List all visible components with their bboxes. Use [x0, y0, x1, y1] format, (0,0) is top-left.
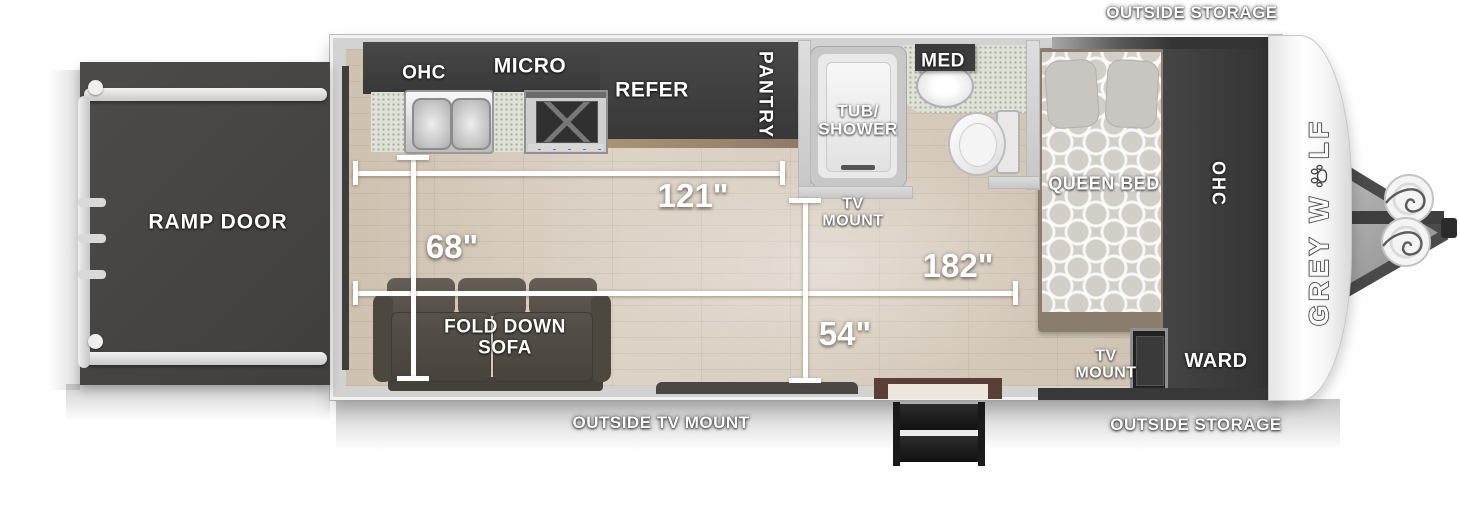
pantry-label: PANTRY: [754, 51, 775, 139]
ramp-ground-shadow: [66, 384, 330, 428]
tub-faucet: [841, 165, 875, 170]
kitchen-counter-left: [371, 92, 404, 152]
entry-steps: [893, 402, 985, 466]
refer-label: REFER: [615, 80, 689, 103]
step-tread: [900, 436, 978, 462]
dim-68-label: 68": [426, 229, 478, 265]
kitchen-stove: [524, 90, 608, 154]
bath-wall-left: [798, 40, 811, 200]
stove-control-strip: [528, 144, 604, 151]
bedroom-tv-mount-label: TV MOUNT: [1075, 348, 1136, 383]
sofa-back-cushion: [387, 278, 455, 316]
dim-121-label: 121": [658, 178, 729, 214]
fold-down-sofa-label: FOLD DOWN SOFA: [444, 317, 566, 358]
brand-logo: GREY W LF: [1302, 91, 1336, 353]
ramp-door-rung: [78, 198, 106, 207]
ramp-door-rung: [78, 270, 106, 279]
toilet-bowl: [948, 112, 1006, 176]
outside-tv-mount-label: OUTSIDE TV MOUNT: [572, 414, 749, 432]
dim-182-label: 182": [923, 248, 994, 284]
kitchen-sink: [404, 90, 494, 154]
outside-tv-mount-bracket: [656, 382, 858, 394]
sofa-armrest-right: [591, 294, 611, 382]
sofa-back-cushion: [529, 278, 597, 316]
bed-pillow: [1104, 59, 1159, 130]
ramp-door-hinge: [88, 334, 103, 349]
brand-logo-text-pre: GREY W: [1304, 193, 1335, 326]
bath-wall-right: [1026, 40, 1040, 190]
sofa-armrest-left: [373, 294, 393, 382]
propane-tank: [1380, 216, 1432, 268]
dimension-line-182: [353, 291, 1018, 296]
bedroom-wardrobe-cabinet: [1163, 44, 1273, 396]
ward-label: WARD: [1184, 351, 1247, 373]
dimension-line-54: [803, 198, 808, 383]
entry-door-frame: [874, 378, 1002, 399]
rear-door-jamb: [342, 66, 349, 370]
stove-back-rail: [526, 92, 606, 98]
hitch-coupler: [1441, 218, 1457, 238]
outside-storage-hatch-top: [1052, 37, 1270, 49]
toilet-seat: [959, 123, 997, 167]
sofa-back-cushion: [458, 278, 526, 316]
ramp-door-rung: [78, 234, 106, 243]
outside-storage-bottom-label: OUTSIDE STORAGE: [1110, 416, 1282, 434]
floorplan-canvas: GREY W LF 121" 68" 182" 54" RAMP DOOR OH…: [0, 0, 1460, 507]
ramp-door-side-rail: [78, 96, 90, 368]
step-tread: [900, 404, 978, 430]
dimension-line-68: [411, 155, 416, 381]
ramp-side-shadow: [48, 70, 80, 390]
bedroom-ohc-label: OHC: [1208, 161, 1227, 207]
ramp-door-label: RAMP DOOR: [148, 212, 287, 235]
ramp-door-top-rail: [84, 88, 327, 101]
paw-icon: [1307, 164, 1331, 188]
tv-cabinet-screen: [1136, 336, 1164, 386]
outside-storage-top-label: OUTSIDE STORAGE: [1106, 4, 1278, 22]
ramp-door-hinge: [88, 80, 103, 95]
sink-bowl: [412, 98, 452, 150]
stove-cooktop: [536, 101, 598, 143]
kitchen-counter-mid: [494, 92, 524, 152]
micro-label: MICRO: [494, 56, 567, 79]
refer-pantry-toekick: [602, 139, 798, 148]
bath-wall-return: [988, 176, 1040, 189]
bed-pillow: [1044, 58, 1101, 129]
med-label: MED: [921, 52, 965, 73]
bath-tv-mount-label: TV MOUNT: [822, 196, 883, 231]
kitchen-ohc-label: OHC: [402, 64, 446, 85]
dim-54-label: 54": [819, 316, 871, 352]
outside-storage-hatch-bottom: [1038, 388, 1282, 400]
sink-bowl: [451, 98, 491, 150]
ramp-door-bottom-rail: [84, 352, 327, 365]
brand-logo-text-post: LF: [1304, 118, 1335, 159]
tub-shower-label: TUB/ SHOWER: [818, 103, 898, 140]
dimension-line-121: [353, 171, 785, 176]
queen-bed-label: QUEEN BED: [1048, 174, 1160, 193]
